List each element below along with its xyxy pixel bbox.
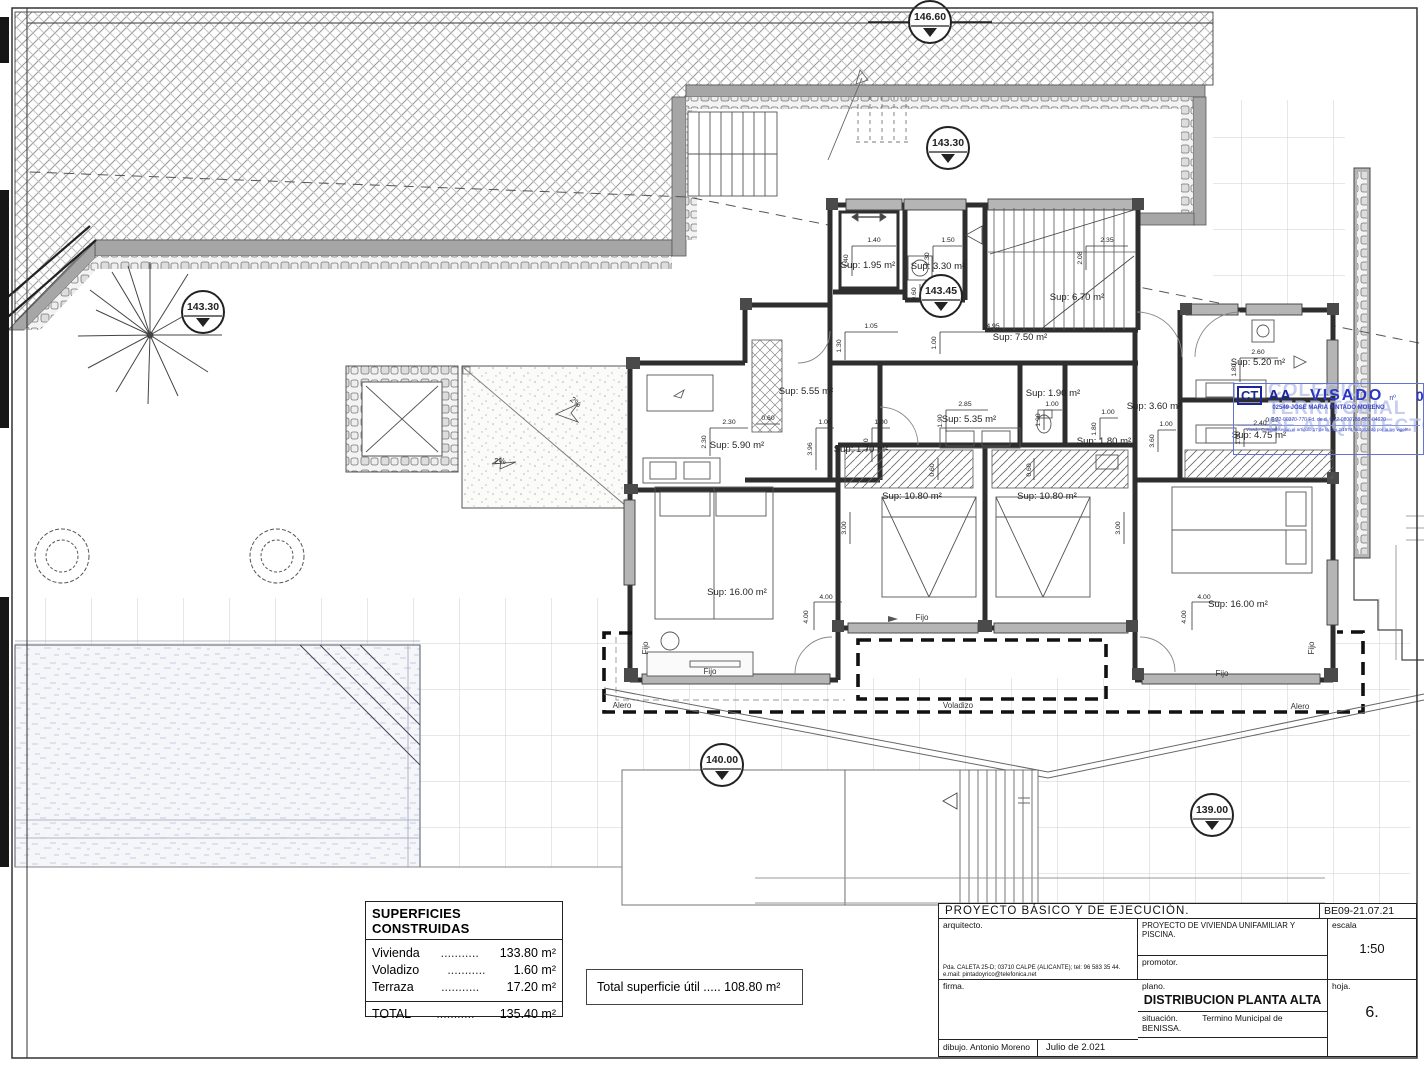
fijo-label: Fijo <box>916 613 929 622</box>
room-label: Sup: 16.00 m² <box>707 587 767 598</box>
drawn-by: dibujo. Antonio Moreno <box>939 1039 1038 1056</box>
svg-text:1.00: 1.00 <box>1101 409 1114 416</box>
room-label: Sup: 1.70 m² <box>834 444 888 455</box>
table-row: Terraza ........... 17.20 m² <box>372 979 556 996</box>
svg-text:3.00: 3.00 <box>841 521 848 534</box>
svg-text:1.30: 1.30 <box>836 339 843 352</box>
svg-text:143.30: 143.30 <box>187 301 219 313</box>
room-label: Sup: 3.60 m² <box>1127 401 1181 412</box>
fijo-label: Fijo <box>641 641 650 654</box>
built-areas-table: SUPERFICIES CONSTRUIDAS Vivienda .......… <box>365 901 563 1017</box>
room-label: Sup: 5.90 m² <box>710 440 764 451</box>
sloped-terrace <box>462 366 628 508</box>
sheet-number: 6. <box>1328 1004 1416 1022</box>
visado-number-label: nº <box>1389 395 1395 402</box>
table-row: Voladizo ........... 1.60 m² <box>372 962 556 979</box>
alero-label: Alero <box>1291 702 1310 711</box>
collegiate-number: 02549 JOSE MARIA PINTADO MORENO <box>1234 405 1423 411</box>
svg-text:1.00: 1.00 <box>1159 421 1172 428</box>
svg-text:140.00: 140.00 <box>706 754 738 766</box>
svg-text:4.00: 4.00 <box>1181 610 1188 623</box>
project-type: PROYECTO BÁSICO Y DE EJECUCIÓN. <box>939 904 1319 918</box>
elevation-marker: 143.45 <box>920 275 962 317</box>
svg-text:1.90: 1.90 <box>1035 413 1042 426</box>
svg-text:4.95: 4.95 <box>986 323 999 330</box>
svg-text:3.00: 3.00 <box>1115 521 1122 534</box>
svg-text:143.45: 143.45 <box>925 285 957 297</box>
room-label: Sup: 5.35 m² <box>942 414 996 425</box>
svg-text:0.60: 0.60 <box>911 287 918 300</box>
svg-text:1.80: 1.80 <box>1231 363 1238 376</box>
svg-text:143.30: 143.30 <box>932 137 964 149</box>
visado-stamp: COLEGIO TERRITORIAL DE ARQUITECTOS CT AA… <box>1233 383 1424 455</box>
elevation-marker: 139.00 <box>1191 794 1233 836</box>
svg-text:2.08: 2.08 <box>1077 251 1084 264</box>
svg-text:1.40: 1.40 <box>867 237 880 244</box>
room-label: Sup: 6.70 m² <box>1050 292 1104 303</box>
architect-address: Pda. CALETA 25-D; 03710 CALPE (ALICANTE)… <box>943 965 1120 971</box>
visado-text: VISADO <box>1310 387 1383 405</box>
plan-name: DISTRIBUCION PLANTA ALTA <box>1138 993 1327 1007</box>
table-total-row: TOTAL ........... 135.40 m² <box>366 1001 562 1022</box>
title-block: PROYECTO BÁSICO Y DE EJECUCIÓN. BE09-21.… <box>938 903 1417 1057</box>
date: Julio de 2.021 <box>1038 1039 1138 1056</box>
svg-text:0.60: 0.60 <box>929 463 936 476</box>
pool <box>15 641 420 867</box>
voladizo-label: Voladizo <box>943 701 974 710</box>
svg-text:4.00: 4.00 <box>803 610 810 623</box>
scale-value: 1:50 <box>1328 941 1416 956</box>
skylight-planter <box>346 366 458 472</box>
sheet-label: hoja. <box>1328 980 1416 992</box>
project-name: PROYECTO DE VIVIENDA UNIFAMILIAR Y PISCI… <box>1138 919 1327 941</box>
signature-label: firma. <box>939 980 1138 992</box>
room-label: Sup: 10.80 m² <box>1017 491 1077 502</box>
fijo-label: Fijo <box>704 667 717 676</box>
room-label: Sup: 7.50 m² <box>993 332 1047 343</box>
room-label: Sup: 5.55 m² <box>779 386 833 397</box>
slope-label: 2% <box>494 457 506 466</box>
room-label: Sup: 16.00 m² <box>1208 599 1268 610</box>
table-row: Vivienda ........... 133.80 m² <box>372 945 556 962</box>
svg-text:2.30: 2.30 <box>924 252 931 265</box>
svg-text:2.85: 2.85 <box>958 401 971 408</box>
alero-label: Alero <box>613 701 632 710</box>
project-ref: BE09-21.07.21 <box>1319 904 1416 918</box>
drawing-sheet: 146.60 143.30 143.45 143.30 140.00 <box>0 0 1426 1066</box>
pool-deck <box>15 867 622 905</box>
svg-text:1.40: 1.40 <box>843 254 850 267</box>
svg-text:1.00: 1.00 <box>874 419 887 426</box>
svg-text:1.50: 1.50 <box>941 237 954 244</box>
svg-text:2.60: 2.60 <box>1251 349 1264 356</box>
fijo-label: Fijo <box>1216 669 1229 678</box>
svg-text:1.80: 1.80 <box>1091 422 1098 435</box>
bush <box>35 529 304 583</box>
svg-text:4.00: 4.00 <box>819 594 832 601</box>
svg-text:1.00: 1.00 <box>1045 401 1058 408</box>
promoter-label: promotor. <box>1142 957 1178 967</box>
architect-label: arquitecto. <box>939 919 1137 931</box>
elevation-marker: 143.30 <box>182 291 224 333</box>
svg-text:1.00: 1.00 <box>931 336 938 349</box>
svg-text:1.70: 1.70 <box>863 438 870 451</box>
fijo-label: Fijo <box>1307 641 1316 654</box>
svg-text:1.05: 1.05 <box>864 323 877 330</box>
svg-text:0.60: 0.60 <box>1026 463 1033 476</box>
room-label: Sup: 1.80 m² <box>1077 436 1131 447</box>
svg-text:2.35: 2.35 <box>1100 237 1113 244</box>
visado-date: 04/02/22 <box>1416 388 1424 404</box>
svg-text:3.60: 3.60 <box>1149 434 1156 447</box>
room-label: Sup: 3.30 m² <box>911 261 965 272</box>
elevation-marker: 140.00 <box>701 744 743 786</box>
location-label: situación. <box>1142 1013 1178 1023</box>
stamp-code-line: E:22-00370-770 Fd. de d. 0:22-0800788-80… <box>1234 417 1423 423</box>
architect-email: e.mail: pintadoyrico@telefonica.net <box>943 972 1036 978</box>
svg-text:146.60: 146.60 <box>914 11 946 23</box>
useful-area-box: Total superficie útil ..... 108.80 m² <box>586 969 803 1005</box>
ctaa-logo-icon: CT <box>1237 386 1262 405</box>
svg-text:139.00: 139.00 <box>1196 804 1228 816</box>
svg-text:2.30: 2.30 <box>722 419 735 426</box>
ctaa-logo-text: AA <box>1268 387 1292 404</box>
room-label: Sup: 1.90 m² <box>1026 388 1080 399</box>
svg-text:1.00: 1.00 <box>818 419 831 426</box>
elevation-marker: 143.30 <box>927 127 969 169</box>
room-label: Sup: 5.20 m² <box>1231 357 1285 368</box>
areas-table-title: SUPERFICIES CONSTRUIDAS <box>366 902 562 940</box>
room-label: Sup: 10.80 m² <box>882 491 942 502</box>
svg-text:4.00: 4.00 <box>1197 594 1210 601</box>
svg-text:1.90: 1.90 <box>937 414 944 427</box>
svg-text:2.30: 2.30 <box>701 435 708 448</box>
svg-text:0.60: 0.60 <box>761 415 774 422</box>
scale-label: escala <box>1328 919 1416 931</box>
svg-text:3.96: 3.96 <box>807 442 814 455</box>
stamp-legal-line: Visado Colegial según el artículo 17 de … <box>1237 425 1420 432</box>
plan-label: plano. <box>1138 980 1327 992</box>
